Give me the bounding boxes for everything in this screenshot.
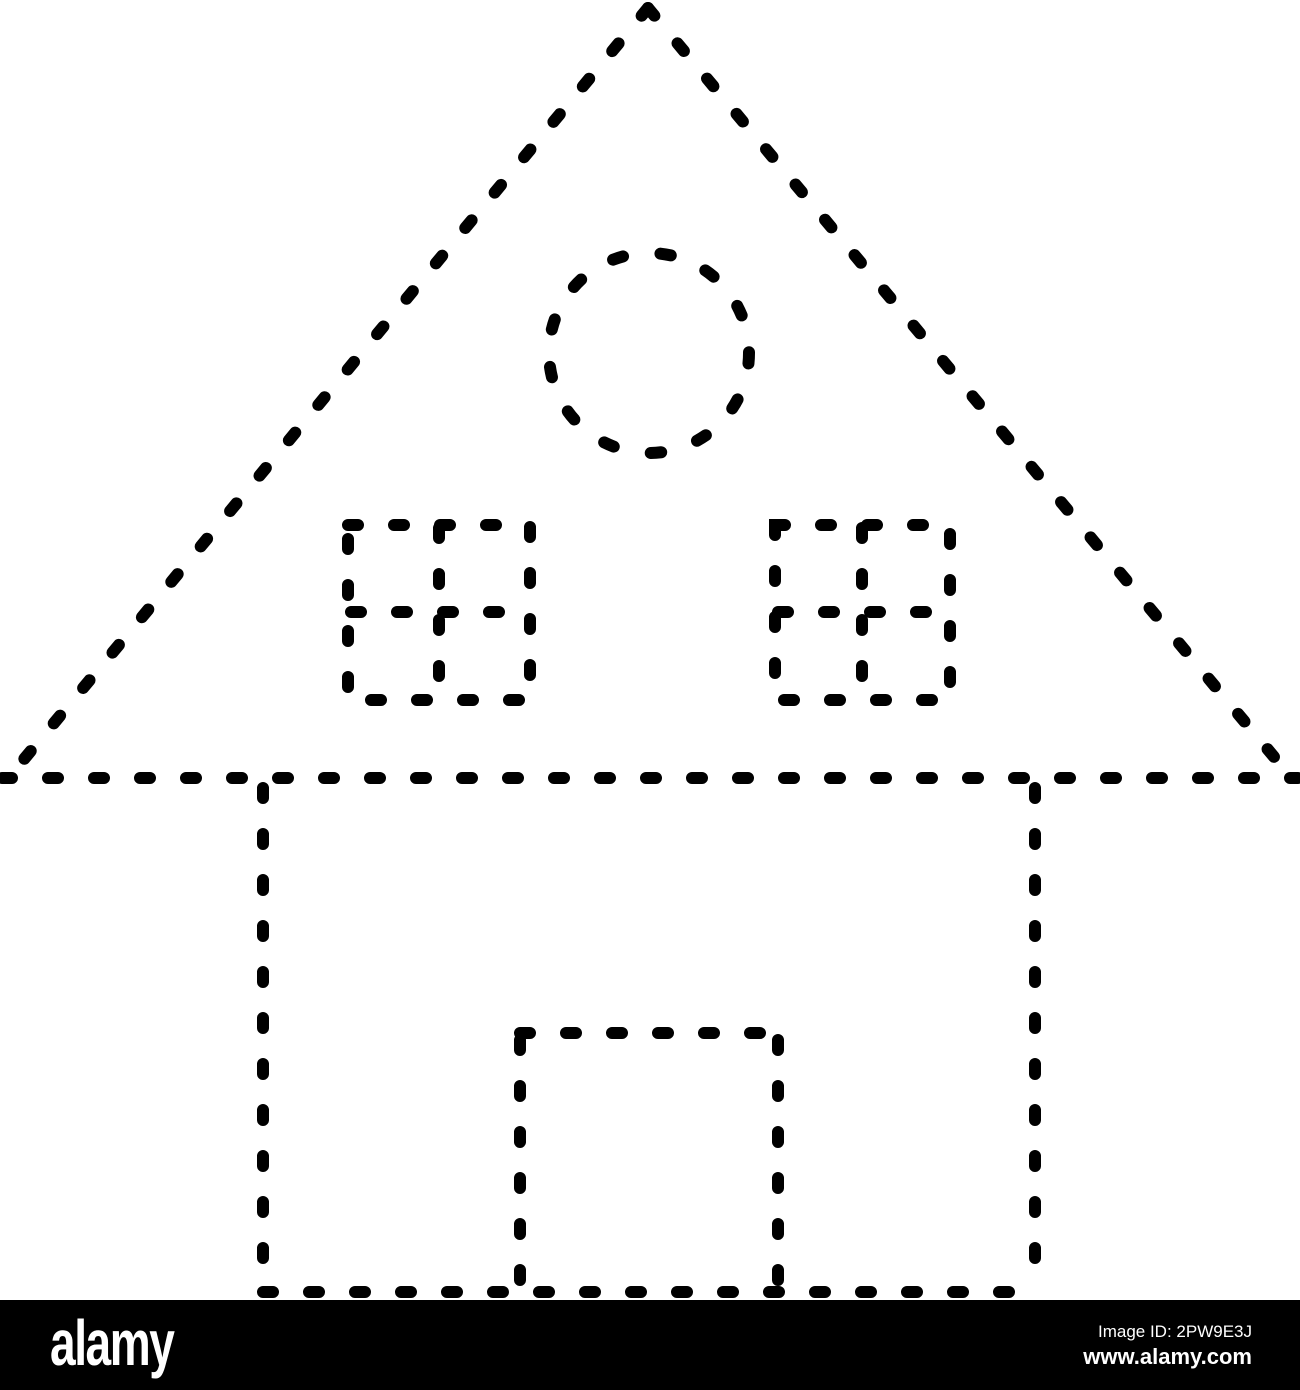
image-id-text: Image ID: 2PW9E3J — [1083, 1323, 1252, 1340]
house-body — [263, 788, 1035, 1292]
website-text: www.alamy.com — [1083, 1346, 1252, 1368]
attic-window-right — [775, 525, 950, 700]
watermark-meta: Image ID: 2PW9E3J www.alamy.com — [1083, 1323, 1252, 1368]
attic-window-left — [348, 525, 530, 700]
watermark-bar: alamy Image ID: 2PW9E3J www.alamy.com — [0, 1300, 1300, 1390]
alamy-logo: alamy — [50, 1311, 173, 1379]
door — [520, 1033, 778, 1286]
house-tracing-figure — [0, 0, 1300, 1300]
roof-right-edge — [648, 8, 1290, 776]
roof-left-edge — [10, 8, 648, 776]
stock-image-page: { "page": { "background": "#ffffff" }, "… — [0, 0, 1300, 1390]
house-tracing-svg — [0, 0, 1300, 1300]
attic-circle-window — [549, 253, 749, 453]
